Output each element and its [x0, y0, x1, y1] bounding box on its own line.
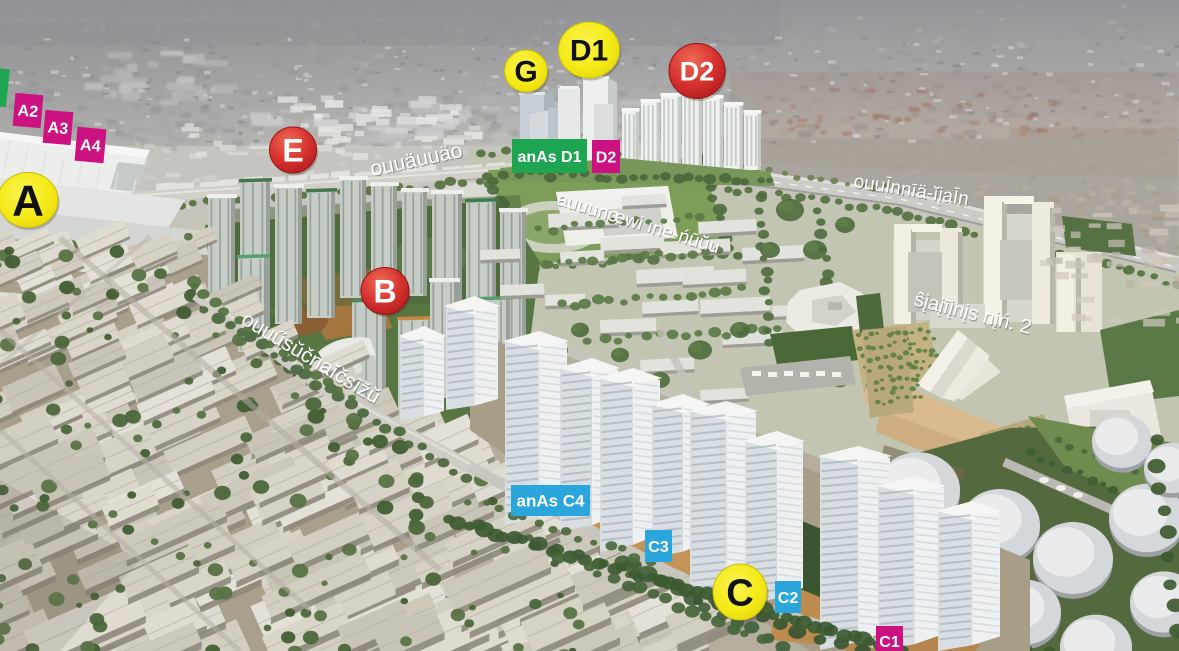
svg-text:anAs C4: anAs C4	[516, 492, 585, 511]
svg-text:C1: C1	[879, 634, 900, 651]
svg-text:B: B	[373, 273, 396, 309]
svg-text:C3: C3	[648, 539, 669, 556]
svg-text:D2: D2	[680, 57, 715, 87]
svg-text:A2: A2	[17, 102, 39, 121]
svg-text:C: C	[726, 572, 753, 614]
svg-text:D2: D2	[596, 149, 617, 166]
svg-text:A4: A4	[79, 137, 101, 156]
svg-text:A: A	[12, 177, 44, 226]
svg-text:G: G	[514, 56, 537, 89]
svg-text:A3: A3	[47, 119, 69, 138]
svg-text:E: E	[282, 132, 303, 168]
svg-text:D1: D1	[570, 35, 608, 68]
svg-text:C2: C2	[778, 590, 799, 607]
svg-text:anAs D1: anAs D1	[517, 149, 581, 166]
